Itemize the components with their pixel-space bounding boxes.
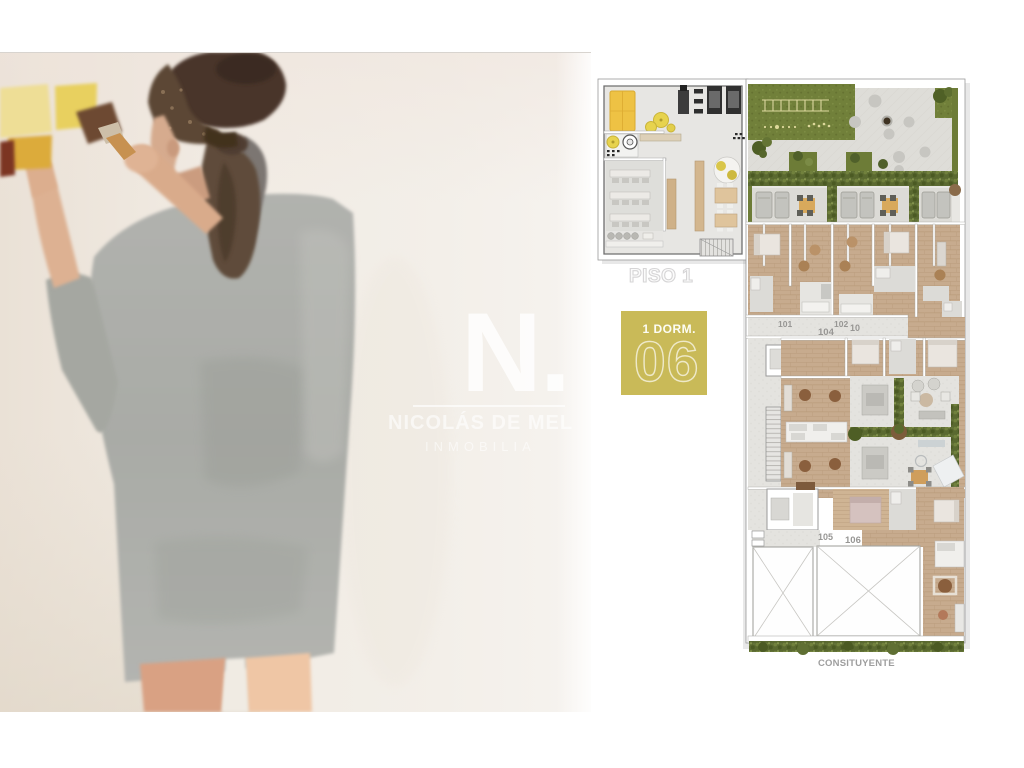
- svg-text:102: 102: [834, 319, 848, 329]
- svg-text:101: 101: [778, 319, 792, 329]
- svg-text:106: 106: [845, 535, 861, 546]
- svg-text:10: 10: [850, 323, 860, 333]
- svg-text:105: 105: [818, 532, 833, 542]
- svg-text:104: 104: [818, 327, 835, 338]
